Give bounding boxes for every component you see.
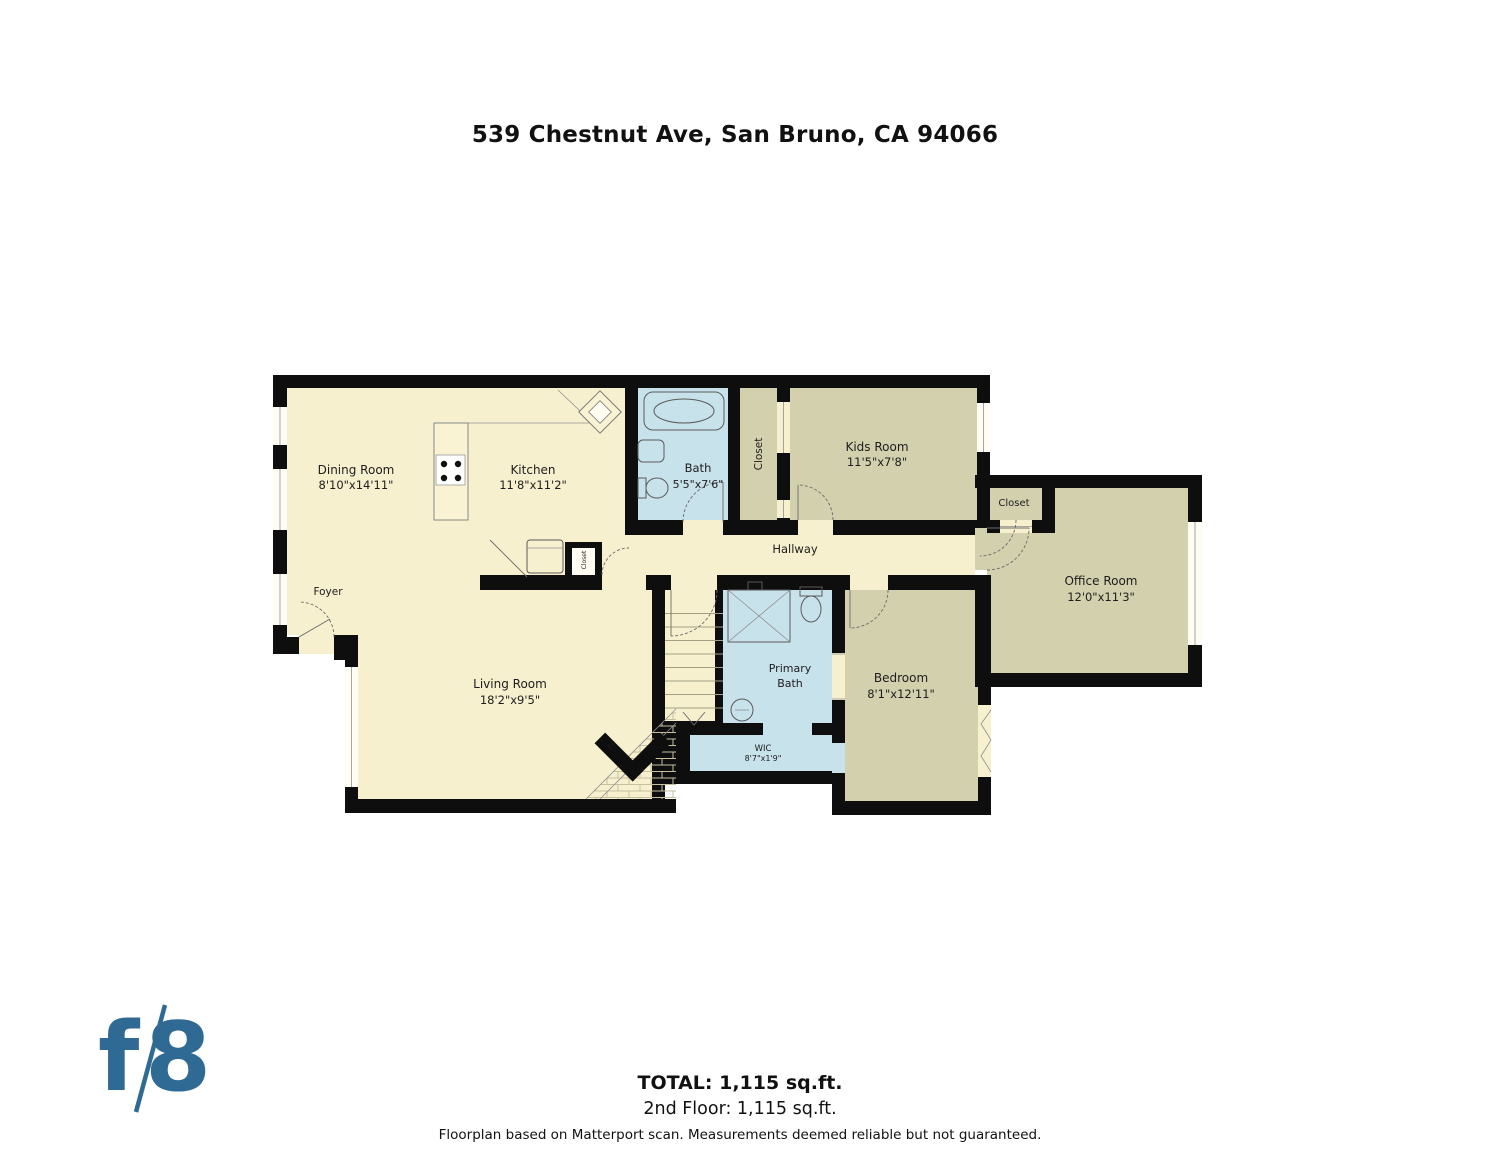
- office-closet-label: Closet: [998, 498, 1029, 509]
- kitchen-label: Kitchen: [510, 463, 555, 477]
- kitchen-dims: 11'8"x11'2": [499, 478, 567, 492]
- wic-dims: 8'7"x1'9": [745, 754, 782, 763]
- footer: TOTAL: 1,115 sq.ft. 2nd Floor: 1,115 sq.…: [0, 1072, 1480, 1143]
- floorplan-drawing: Dining Room 8'10"x14'11" Kitchen 11'8"x1…: [260, 368, 1220, 838]
- stove: [436, 455, 465, 485]
- dining-dims: 8'10"x14'11": [319, 478, 394, 492]
- hall-closet-label: Closet: [753, 438, 765, 471]
- kitchen-closet-label: Closet: [581, 550, 588, 569]
- living-dims: 18'2"x9'5": [480, 693, 540, 707]
- dining-label: Dining Room: [318, 463, 395, 477]
- living-label: Living Room: [473, 677, 547, 691]
- page-title: 539 Chestnut Ave, San Bruno, CA 94066: [0, 122, 1470, 148]
- wic-label: WIC: [755, 744, 772, 754]
- bedroom-window: [978, 705, 991, 777]
- primary-bath-label-2: Bath: [777, 677, 803, 690]
- floor-area: 2nd Floor: 1,115 sq.ft.: [0, 1099, 1480, 1119]
- bath-floor: [638, 388, 728, 522]
- hallway-label: Hallway: [772, 542, 818, 556]
- total-area: TOTAL: 1,115 sq.ft.: [0, 1072, 1480, 1094]
- kids-room-dims: 11'5"x7'8": [847, 455, 907, 469]
- entry-nook-floor: [299, 626, 334, 654]
- bath-label: Bath: [685, 461, 712, 475]
- primary-bath-floor: [723, 583, 832, 725]
- bedroom-dims: 8'1"x12'11": [867, 687, 935, 701]
- office-label: Office Room: [1064, 574, 1137, 588]
- disclaimer: Floorplan based on Matterport scan. Meas…: [0, 1127, 1480, 1143]
- foyer-label: Foyer: [313, 586, 343, 598]
- floorplan-page: 539 Chestnut Ave, San Bruno, CA 94066: [0, 0, 1500, 1159]
- bath-dims: 5'5"x7'6": [673, 478, 724, 491]
- bedroom-label: Bedroom: [874, 671, 928, 685]
- primary-bath-label-1: Primary: [769, 662, 812, 675]
- kids-room-label: Kids Room: [845, 440, 908, 454]
- living-room-floor: [352, 583, 652, 801]
- office-dims: 12'0"x11'3": [1067, 590, 1135, 604]
